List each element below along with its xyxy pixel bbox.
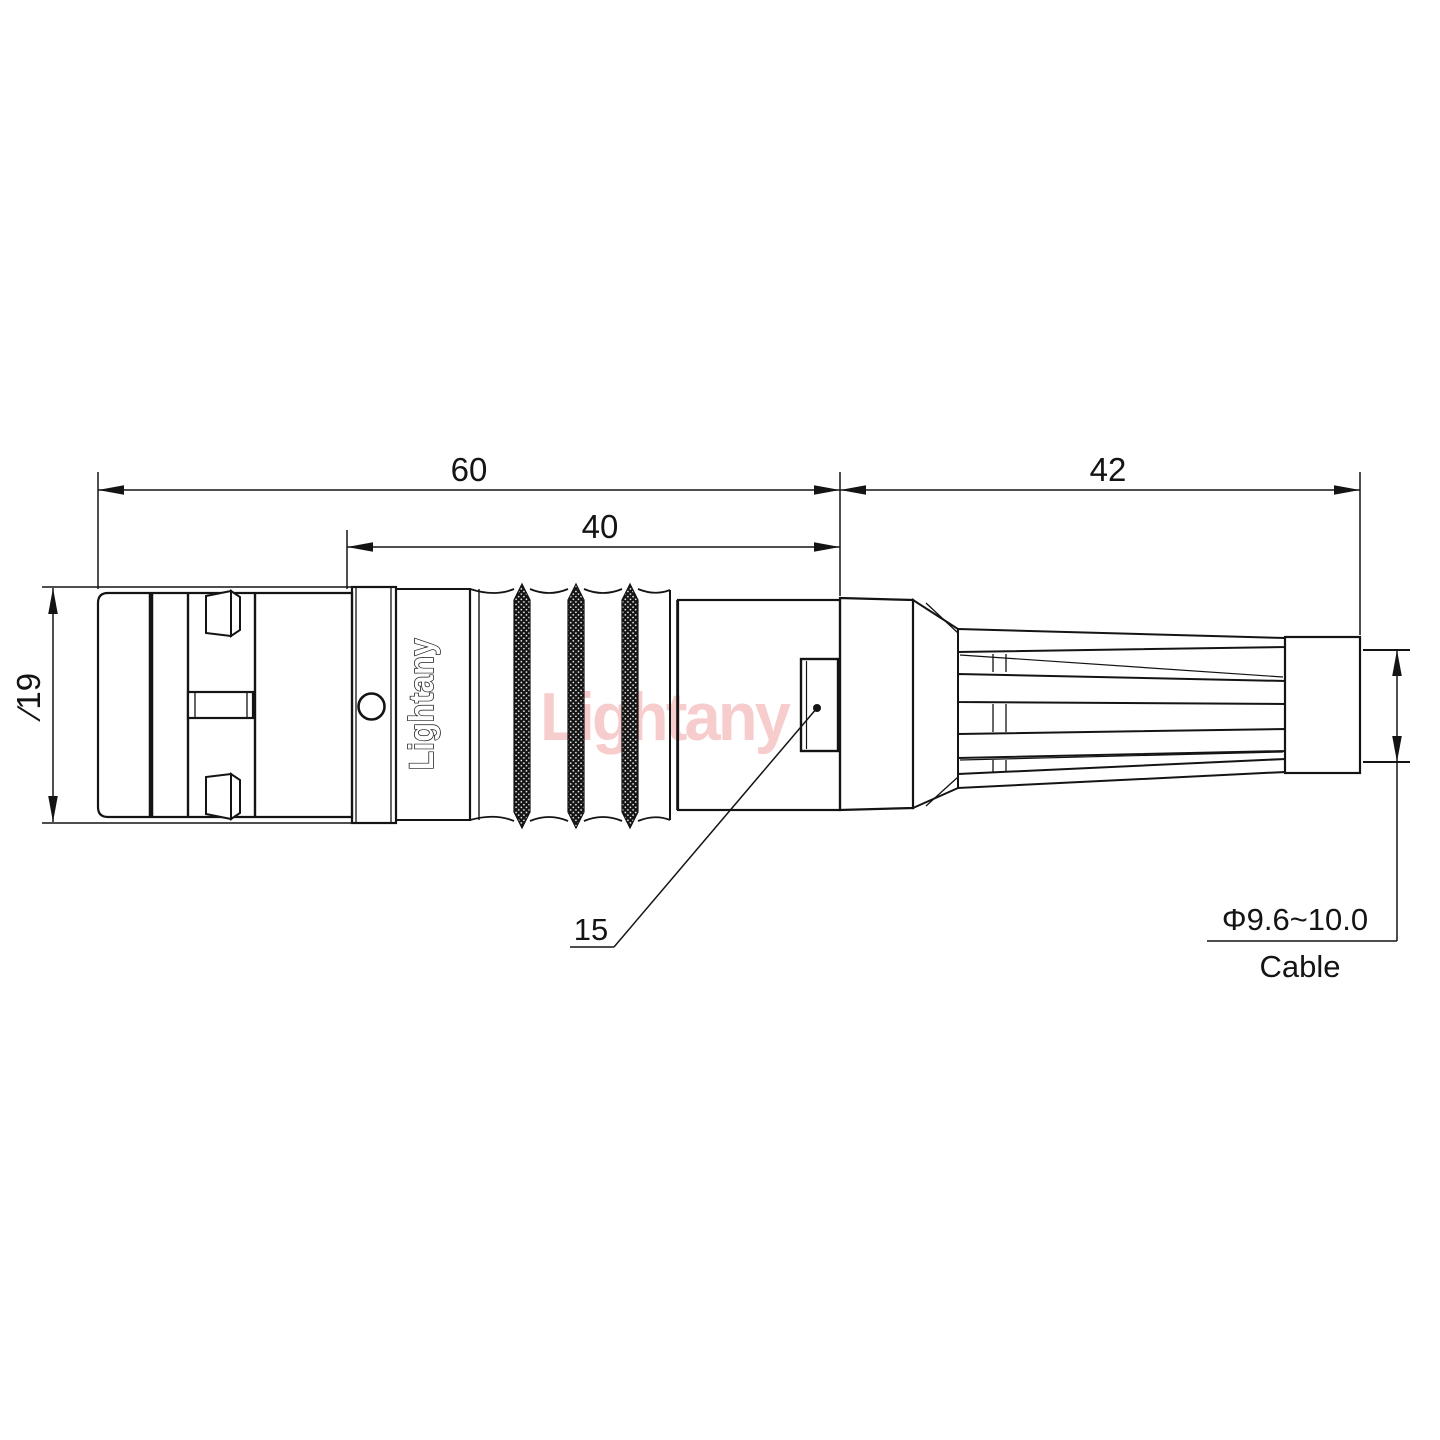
arrowhead <box>840 485 866 495</box>
knurl-band-1 <box>514 584 530 828</box>
dim-label-dia19: ∕19 <box>10 673 47 722</box>
arrowhead <box>98 485 124 495</box>
bayonet-pin-top <box>206 591 231 636</box>
arrowhead <box>1392 650 1402 676</box>
arrowhead <box>814 542 840 552</box>
arrowhead <box>814 485 840 495</box>
arrowhead <box>347 542 373 552</box>
body-logo-text: Lightany <box>403 638 441 770</box>
bayonet-pin-bottom <box>206 774 231 819</box>
boot-gap-line-top <box>960 655 1283 677</box>
key-slot <box>188 692 253 718</box>
dim-label-40: 40 <box>582 508 619 545</box>
arrowhead <box>1392 736 1402 762</box>
leader-label-15: 15 <box>574 912 608 947</box>
arrowhead <box>48 796 58 822</box>
knurl-band-2 <box>568 584 584 828</box>
dim-label-42: 42 <box>1090 451 1127 488</box>
boot-cone-fill <box>913 600 958 808</box>
cable-endcap-fill <box>1285 637 1360 773</box>
cable-label: Cable <box>1260 949 1341 984</box>
vent-hole <box>359 694 385 720</box>
arrowhead <box>1334 485 1360 495</box>
knurl-band-3 <box>622 584 638 828</box>
cable-diameter-label: Φ9.6~10.0 <box>1222 902 1368 937</box>
boot-cylinder-fill <box>840 598 913 810</box>
dim-label-60: 60 <box>451 451 488 488</box>
bayonet-pin-top-side <box>231 591 240 636</box>
technical-drawing-canvas: Lightany Lightany <box>0 0 1440 1440</box>
arrowhead <box>48 588 58 614</box>
bayonet-pin-bottom-side <box>231 774 240 819</box>
